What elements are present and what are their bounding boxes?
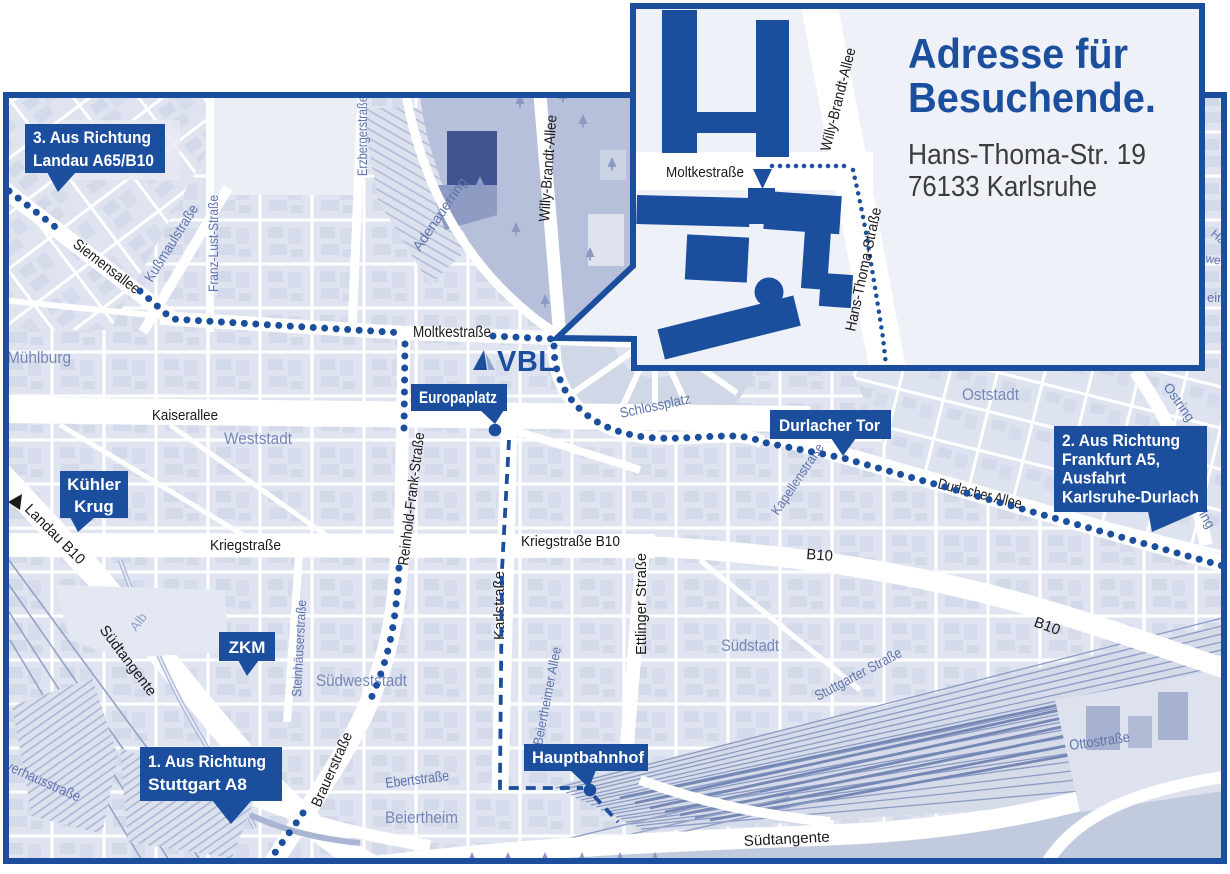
svg-text:Beiertheim: Beiertheim (385, 809, 458, 827)
svg-text:Moltkestraße: Moltkestraße (666, 164, 744, 181)
svg-text:Hans-Thoma-Str. 19: Hans-Thoma-Str. 19 (908, 139, 1146, 171)
svg-text:Hauptbahnhof: Hauptbahnhof (532, 748, 644, 767)
svg-text:Karlstraße: Karlstraße (491, 571, 508, 640)
svg-text:Adresse für: Adresse für (908, 30, 1128, 77)
svg-text:Kriegstraße: Kriegstraße (210, 537, 281, 554)
svg-text:Südweststadt: Südweststadt (316, 672, 407, 690)
svg-text:Frankfurt A5,: Frankfurt A5, (1062, 450, 1160, 469)
svg-text:Südstadt: Südstadt (721, 637, 779, 655)
svg-text:Karlsruhe-Durlach: Karlsruhe-Durlach (1062, 487, 1199, 506)
svg-text:Durlacher Tor: Durlacher Tor (779, 416, 880, 435)
svg-text:Mühlburg: Mühlburg (7, 349, 71, 367)
svg-text:Ettlinger Straße: Ettlinger Straße (633, 553, 650, 655)
svg-text:Ausfahrt: Ausfahrt (1062, 469, 1126, 488)
svg-text:Kriegstraße B10: Kriegstraße B10 (521, 533, 620, 550)
svg-text:Oststadt: Oststadt (962, 386, 1019, 404)
svg-text:Moltkestraße: Moltkestraße (413, 324, 491, 341)
svg-text:2. Aus Richtung: 2. Aus Richtung (1062, 431, 1180, 450)
svg-text:Kühler: Kühler (67, 475, 121, 494)
svg-text:Europaplatz: Europaplatz (419, 388, 497, 407)
svg-text:VBL: VBL (497, 346, 557, 378)
svg-text:Weststadt: Weststadt (224, 430, 292, 448)
svg-text:1. Aus Richtung: 1. Aus Richtung (148, 752, 266, 771)
svg-text:Krug: Krug (74, 497, 114, 516)
svg-text:Landau A65/B10: Landau A65/B10 (33, 151, 154, 170)
svg-text:Kaiserallee: Kaiserallee (152, 407, 218, 424)
svg-text:ZKM: ZKM (229, 638, 266, 657)
svg-text:76133 Karlsruhe: 76133 Karlsruhe (908, 171, 1097, 203)
svg-text:Franz-Lust-Straße: Franz-Lust-Straße (205, 195, 221, 292)
svg-text:Besuchende.: Besuchende. (908, 74, 1156, 121)
svg-text:3. Aus Richtung: 3. Aus Richtung (33, 128, 151, 147)
svg-text:B10: B10 (806, 546, 834, 565)
svg-text:Stuttgart A8: Stuttgart A8 (148, 775, 247, 794)
svg-text:Erzbergerstraße: Erzbergerstraße (354, 96, 370, 176)
